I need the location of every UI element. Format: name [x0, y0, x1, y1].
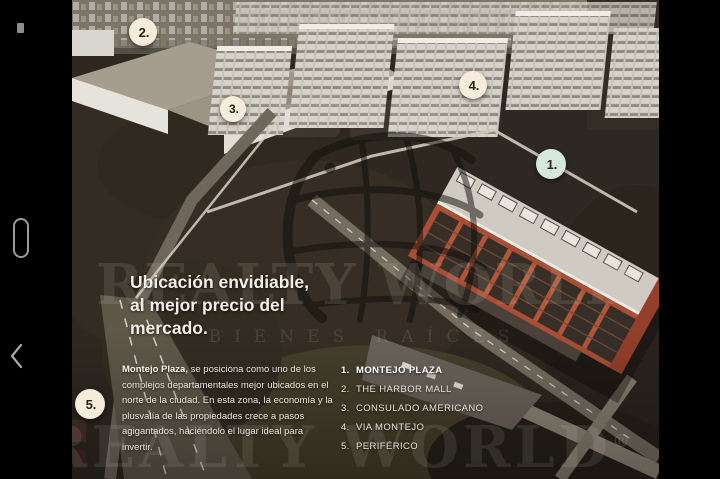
location-legend: 1. MONTEJO PLAZA 2. THE HARBOR MALL 3. C… — [341, 365, 483, 460]
legend-item-periferico: 5. PERIFÉRICO — [341, 441, 483, 460]
legend-label: PERIFÉRICO — [356, 441, 418, 452]
legend-num: 3. — [341, 403, 356, 414]
map-marker-3-consulado: 3. — [220, 96, 246, 122]
description-paragraph: Montejo Plaza, se posiciona como uno de … — [122, 362, 336, 455]
status-dot-icon — [17, 23, 24, 33]
description-lead: Montejo Plaza, — [122, 364, 188, 375]
map-marker-5-periferico: 5. — [75, 389, 105, 419]
legend-item-harbor-mall: 2. THE HARBOR MALL — [341, 384, 483, 403]
marker-label: 3. — [229, 102, 239, 116]
screenshot-stage: REALTY WORLD BIENES RAÍCES REALTY WORLD®… — [0, 0, 720, 479]
legend-label: VIA MONTEJO — [356, 422, 424, 433]
legend-label: CONSULADO AMERICANO — [356, 403, 483, 414]
legend-item-via-montejo: 4. VIA MONTEJO — [341, 422, 483, 441]
marker-label: 4. — [469, 78, 480, 93]
legend-num: 4. — [341, 422, 356, 433]
marker-label: 2. — [139, 25, 150, 40]
marker-label: 5. — [86, 397, 97, 412]
chevron-left-icon — [9, 343, 25, 369]
legend-num: 5. — [341, 441, 356, 452]
back-button[interactable] — [9, 343, 25, 369]
legend-label: THE HARBOR MALL — [356, 384, 452, 395]
marker-label: 1. — [547, 157, 558, 172]
legend-item-montejo-plaza: 1. MONTEJO PLAZA — [341, 365, 483, 384]
stylus-cursor-icon — [13, 218, 29, 258]
map-marker-4-via-montejo: 4. — [459, 71, 487, 99]
left-letterbox-bar — [0, 0, 72, 479]
headline: Ubicación envidiable, al mejor precio de… — [130, 271, 320, 340]
right-letterbox-bar — [659, 0, 720, 479]
legend-item-consulado: 3. CONSULADO AMERICANO — [341, 403, 483, 422]
registered-mark: ® — [612, 431, 634, 452]
map-marker-1-montejo-plaza: 1. — [536, 149, 566, 179]
description-body: se posiciona como uno de los complejos d… — [122, 364, 333, 453]
legend-num: 2. — [341, 384, 356, 395]
map-marker-2-harbor-mall: 2. — [129, 18, 157, 46]
legend-label: MONTEJO PLAZA — [356, 365, 442, 376]
legend-num: 1. — [341, 365, 356, 376]
